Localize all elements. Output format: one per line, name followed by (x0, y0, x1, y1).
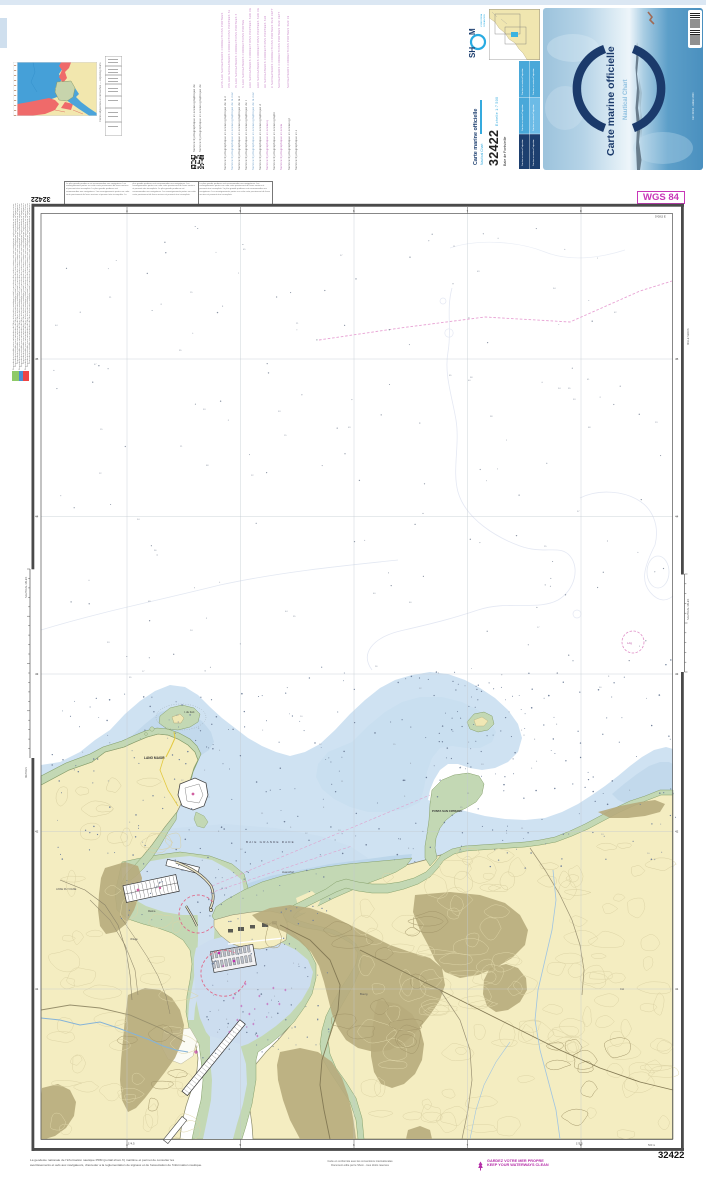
svg-text:Avant-Port: Avant-Port (282, 870, 294, 874)
svg-text:45: 45 (35, 357, 39, 361)
svg-text:ANSE DU VIGNE: ANSE DU VIGNE (56, 887, 77, 891)
svg-text:1°5,5: 1°5,5 (576, 1142, 583, 1146)
svg-text:LANG MAIOR: LANG MAIOR (144, 756, 165, 760)
svg-text:44: 44 (35, 515, 39, 519)
svg-text:PUNTA SAN CIPRIANU: PUNTA SAN CIPRIANU (432, 809, 462, 813)
svg-text:Ldg: Ldg (627, 641, 632, 645)
svg-text:500 m: 500 m (648, 1143, 655, 1147)
svg-text:5°08,5 E: 5°08,5 E (655, 215, 666, 219)
svg-text:Bourg: Bourg (360, 992, 368, 996)
svg-text:42: 42 (35, 830, 39, 834)
svg-text:42: 42 (675, 830, 679, 834)
svg-text:Col: Col (620, 987, 624, 991)
svg-text:BAIE GRANDE RADE: BAIE GRANDE RADE (246, 840, 295, 844)
svg-text:45: 45 (675, 357, 679, 361)
svg-text:41: 41 (35, 987, 39, 991)
svg-text:43: 43 (675, 672, 679, 676)
svg-text:I. du Fort: I. du Fort (184, 710, 195, 714)
svg-text:Marina: Marina (148, 910, 156, 913)
svg-text:44: 44 (675, 515, 679, 519)
svg-text:Village: Village (130, 937, 138, 941)
svg-text:41: 41 (675, 987, 679, 991)
svg-text:43: 43 (35, 672, 39, 676)
svg-text:1°4,5: 1°4,5 (128, 1142, 135, 1146)
